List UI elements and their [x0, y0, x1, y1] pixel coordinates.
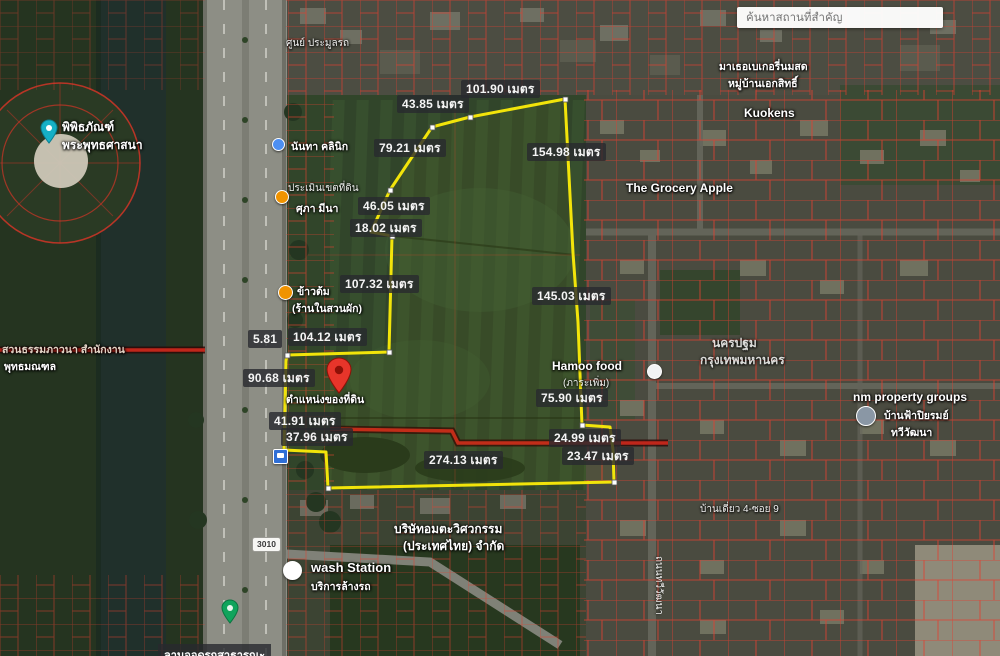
- poi-landeval-line2[interactable]: ศุภา มีนา: [296, 200, 338, 217]
- measurement-label: 37.96 เมตร: [281, 428, 353, 446]
- map-viewport[interactable]: 43.85 เมตร 101.90 เมตร 79.21 เมตร 154.98…: [0, 0, 1000, 656]
- poi-dharma-office-line1[interactable]: สวนธรรมภาวนา สำนักงาน: [2, 341, 125, 358]
- measurement-label: 43.85 เมตร: [397, 95, 469, 113]
- restaurant-poi-icon[interactable]: [275, 190, 289, 204]
- measurement-label: 46.05 เมตร: [358, 197, 430, 215]
- poi-nm-line3: ทวีวัฒนา: [891, 424, 932, 441]
- road-name-vertical: ถนนทวีวัฒนา: [651, 556, 666, 615]
- measurement-label: 75.90 เมตร: [536, 389, 608, 407]
- poi-bakery-line2[interactable]: หมู่บ้านเอกสิทธิ์: [728, 75, 798, 92]
- poi-auction-center[interactable]: ศูนย์ ประมูลรถ: [286, 36, 349, 51]
- satellite-basemap[interactable]: [0, 0, 1000, 656]
- poi-clinic[interactable]: นันทา คลินิก: [291, 138, 348, 155]
- route-shield: 3010: [252, 537, 281, 552]
- province-label-bangkok: กรุงเทพมหานคร: [700, 351, 785, 370]
- measurement-label: 104.12 เมตร: [288, 328, 367, 346]
- pin-caption: ตำแหน่งของที่ดิน: [286, 391, 364, 408]
- measurement-label: 90.68 เมตร: [243, 369, 315, 387]
- measurement-label: 274.13 เมตร: [424, 451, 503, 469]
- search-input[interactable]: [737, 7, 943, 28]
- measurement-label: 79.21 เมตร: [374, 139, 446, 157]
- measurement-label: 145.03 เมตร: [532, 287, 611, 305]
- poi-kuokens[interactable]: Kuokens: [744, 106, 795, 120]
- search-box[interactable]: [737, 7, 943, 28]
- poi-wash-sub: บริการล้างรถ: [311, 578, 371, 595]
- measurement-label: 101.90 เมตร: [461, 80, 540, 98]
- measurement-label: 154.98 เมตร: [527, 143, 606, 161]
- poi-hamoo-food[interactable]: Hamoo food: [552, 359, 622, 373]
- measurement-label: 18.02 เมตร: [350, 219, 422, 237]
- poi-grocery-apple[interactable]: The Grocery Apple: [626, 181, 733, 195]
- wash-station-poi-icon[interactable]: [283, 561, 302, 580]
- poi-landeval-line1[interactable]: ประเมินเขตที่ดิน: [288, 181, 359, 196]
- transit-stop-icon[interactable]: [273, 449, 288, 464]
- poi-nm-line2[interactable]: บ้านฟ้าปิยรมย์: [884, 407, 949, 424]
- restaurant-poi-icon[interactable]: [278, 285, 293, 300]
- poi-bakery-line1[interactable]: มาเธอเบเกอรี่นมสด: [719, 58, 808, 75]
- poi-porridge-line2[interactable]: (ร้านในสวนผัก): [292, 300, 362, 317]
- canal-water: [100, 0, 166, 656]
- poi-parking-lot: ลานจอดรถสาธารณะ: [158, 644, 271, 656]
- poi-dharma-office-line2[interactable]: พุทธมณฑล: [4, 358, 56, 375]
- hamoo-poi-icon[interactable]: [647, 364, 662, 379]
- poi-museum-line2[interactable]: พระพุทธศาสนา: [62, 136, 143, 155]
- nm-poi-icon[interactable]: [856, 406, 876, 426]
- measurement-label: 24.99 เมตร: [549, 429, 621, 447]
- measurement-label: 23.47 เมตร: [562, 447, 634, 465]
- poi-wash-station[interactable]: wash Station: [311, 560, 391, 575]
- clinic-poi-icon[interactable]: [272, 138, 285, 151]
- poi-company-line2[interactable]: (ประเทศไทย) จำกัด: [403, 537, 504, 556]
- poi-museum-line1[interactable]: พิพิธภัณฑ์: [62, 118, 114, 137]
- measurement-label: 107.32 เมตร: [340, 275, 419, 293]
- poi-soi-label: บ้านเดี่ยว 4-ซอย 9: [700, 502, 779, 517]
- poi-porridge-line1[interactable]: ข้าวต้ม: [297, 283, 330, 300]
- measurement-label: 5.81: [248, 330, 282, 348]
- poi-hamoo-sub: (ภาระเพิ่ม): [563, 376, 609, 391]
- poi-nm-property[interactable]: nm property groups: [853, 390, 967, 404]
